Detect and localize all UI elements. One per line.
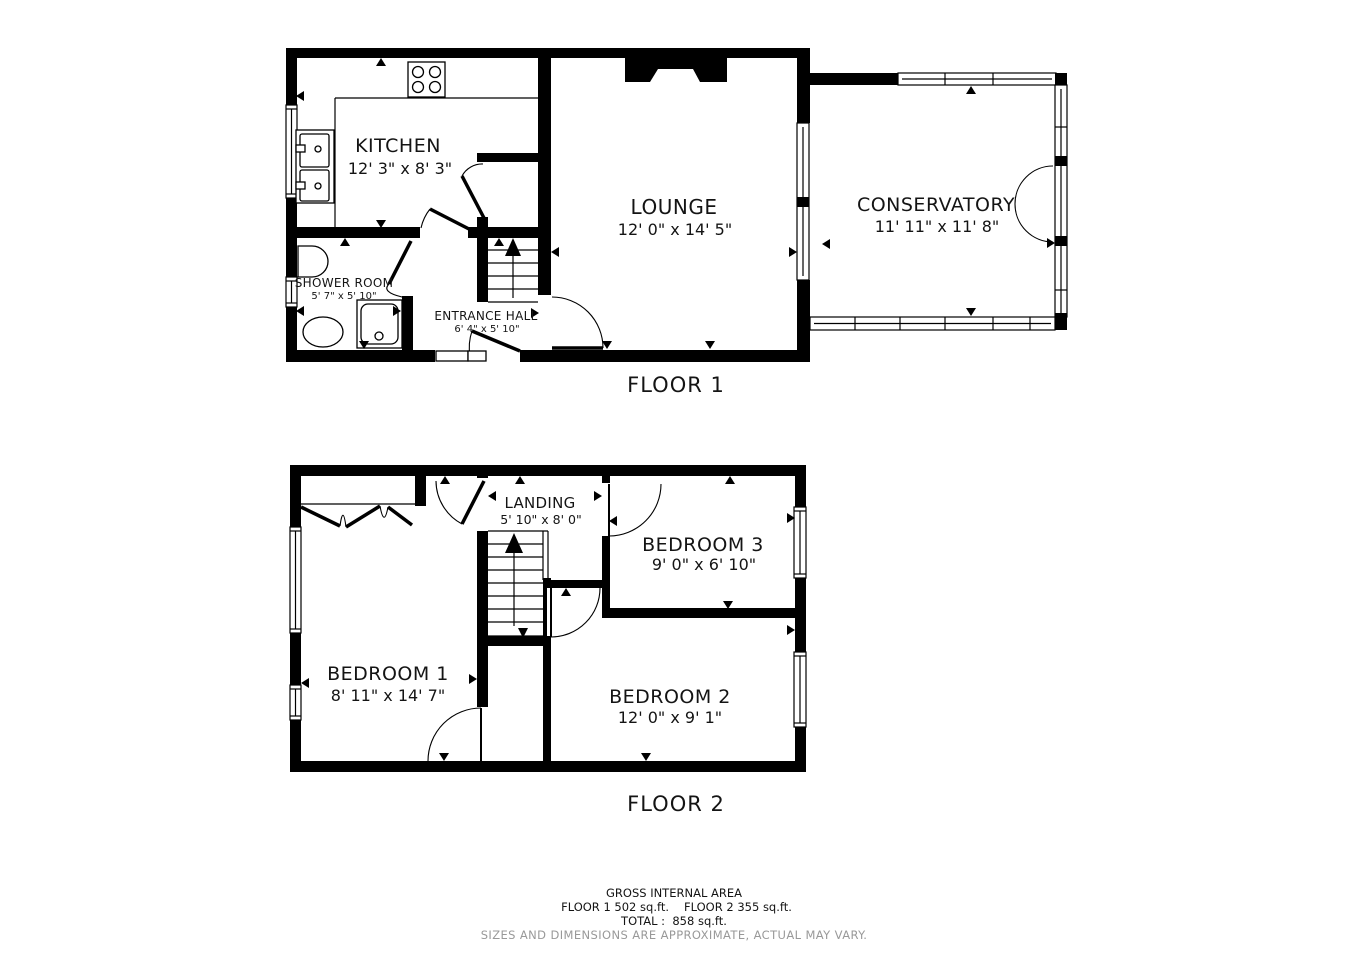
floor1-plan: KITCHEN 12' 3" x 8' 3" LOUNGE 12' 0" x 1… [286,48,1067,397]
bedroom3-dims: 9' 0" x 6' 10" [652,555,756,574]
floor1-area-text: FLOOR 1 502 sq.ft. [561,900,669,914]
shower-tray-icon [357,300,402,348]
disclaimer-text: SIZES AND DIMENSIONS ARE APPROXIMATE, AC… [481,928,868,942]
conservatory-french-doors [1015,166,1053,242]
bedroom2-door [551,588,600,637]
kitchen-label: KITCHEN [355,135,441,157]
floor-plan-drawing: KITCHEN 12' 3" x 8' 3" LOUNGE 12' 0" x 1… [0,0,1351,953]
floor2-plan: LANDING 5' 10" x 8' 0" BEDROOM 3 9' 0" x… [290,465,806,816]
floor2-title: FLOOR 2 [627,792,725,816]
bedroom1-label: BEDROOM 1 [327,663,449,685]
cupboard-door [462,164,484,218]
sink-icon [296,130,334,203]
lounge-label: LOUNGE [631,195,718,219]
lounge-conservatory-window [797,123,809,280]
kitchen-door [421,209,469,229]
total-area-text: TOTAL : 858 sq.ft. [620,914,727,928]
floor2-area-text: FLOOR 2 355 sq.ft. [684,900,792,914]
stairs-up-arrow-floor2 [505,533,523,553]
lounge-door [552,297,603,348]
landing-dims: 5' 10" x 8' 0" [500,512,581,527]
basin-icon [298,246,328,277]
bedroom3-door [609,484,661,536]
stairs-up-arrow-floor1 [505,238,521,256]
lounge-dims: 12' 0" x 14' 5" [618,220,732,239]
conservatory-dims: 11' 11" x 11' 8" [875,217,1000,236]
stairs-floor2 [488,531,548,638]
bedroom1-door [436,481,484,524]
bedroom3-label: BEDROOM 3 [642,534,764,556]
floor-plan-page: KITCHEN 12' 3" x 8' 3" LOUNGE 12' 0" x 1… [0,0,1351,953]
bedroom1-closet-door [428,708,481,761]
stairs-floor1 [488,238,538,302]
hob-icon [408,62,445,97]
bedroom2-dims: 12' 0" x 9' 1" [618,708,722,727]
kitchen-dims: 12' 3" x 8' 3" [348,159,452,178]
bedroom2-window [794,652,806,727]
shower-room-label: SHOWER ROOM [295,276,394,290]
toilet-icon [303,317,343,347]
front-door [436,331,520,361]
entrance-hall-label: ENTRANCE HALL [434,309,537,323]
entrance-hall-dims: 6' 4" x 5' 10" [454,324,519,335]
bedroom1-window-upper [290,527,301,633]
floor1-title: FLOOR 1 [627,373,725,397]
bedroom1-window-lower [290,685,301,720]
footer-area-summary: GROSS INTERNAL AREA FLOOR 1 502 sq.ft. F… [481,886,868,942]
fireplace-recess [650,69,700,82]
conservatory-label: CONSERVATORY [857,194,1015,216]
landing-label: LANDING [504,494,575,512]
shower-room-dims: 5' 7" x 5' 10" [311,291,376,302]
bedroom1-dims: 8' 11" x 14' 7" [331,686,445,705]
gross-internal-area-title: GROSS INTERNAL AREA [606,886,742,900]
bedroom3-window [794,507,806,578]
bedroom2-label: BEDROOM 2 [609,686,731,708]
wardrobe-bifold-doors [301,504,415,527]
